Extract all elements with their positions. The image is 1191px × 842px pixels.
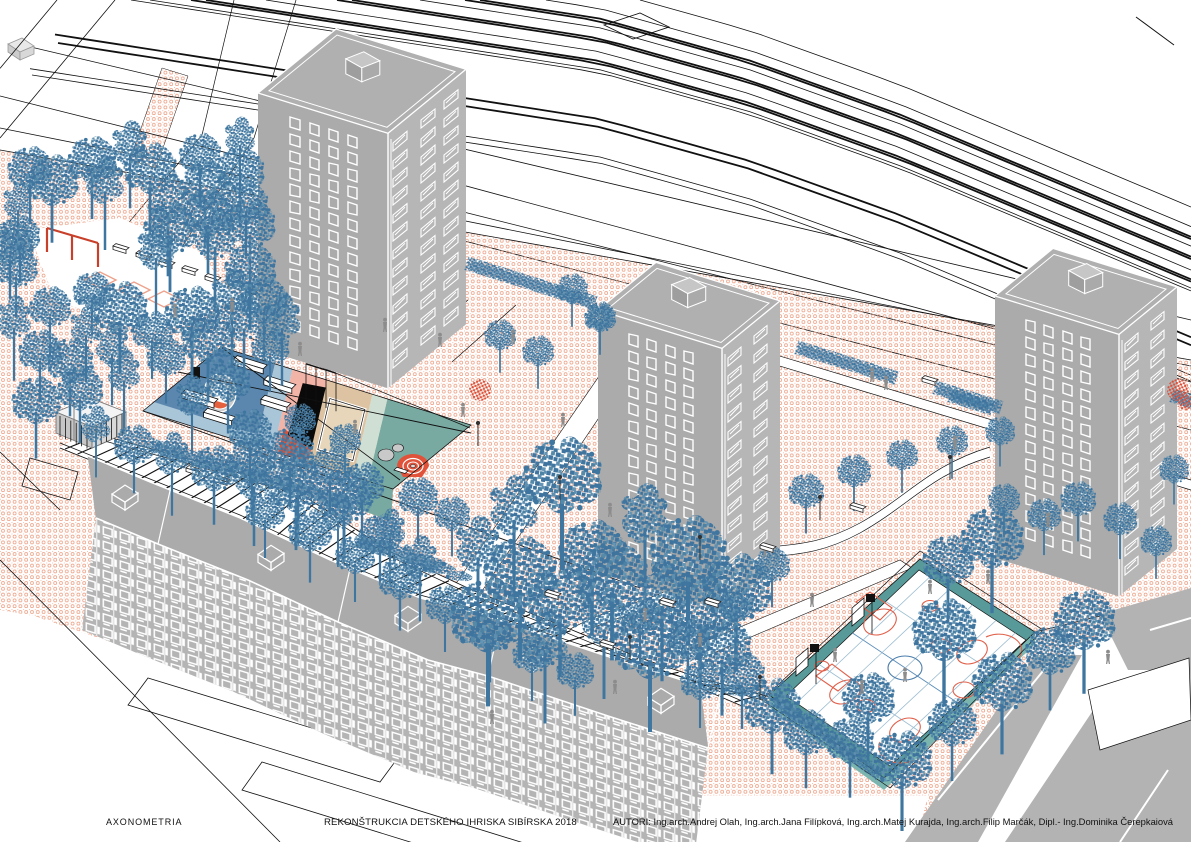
svg-text:AXONOMETRIA: AXONOMETRIA bbox=[106, 817, 182, 827]
svg-text:REKONŠTRUKCIA DETSKÉHO IHRISKA: REKONŠTRUKCIA DETSKÉHO IHRISKA SIBÍRSKA … bbox=[324, 817, 577, 828]
svg-text:AUTORI: Ing.arch.Andrej Olah,: AUTORI: Ing.arch.Andrej Olah, Ing.arch.J… bbox=[613, 816, 1174, 827]
